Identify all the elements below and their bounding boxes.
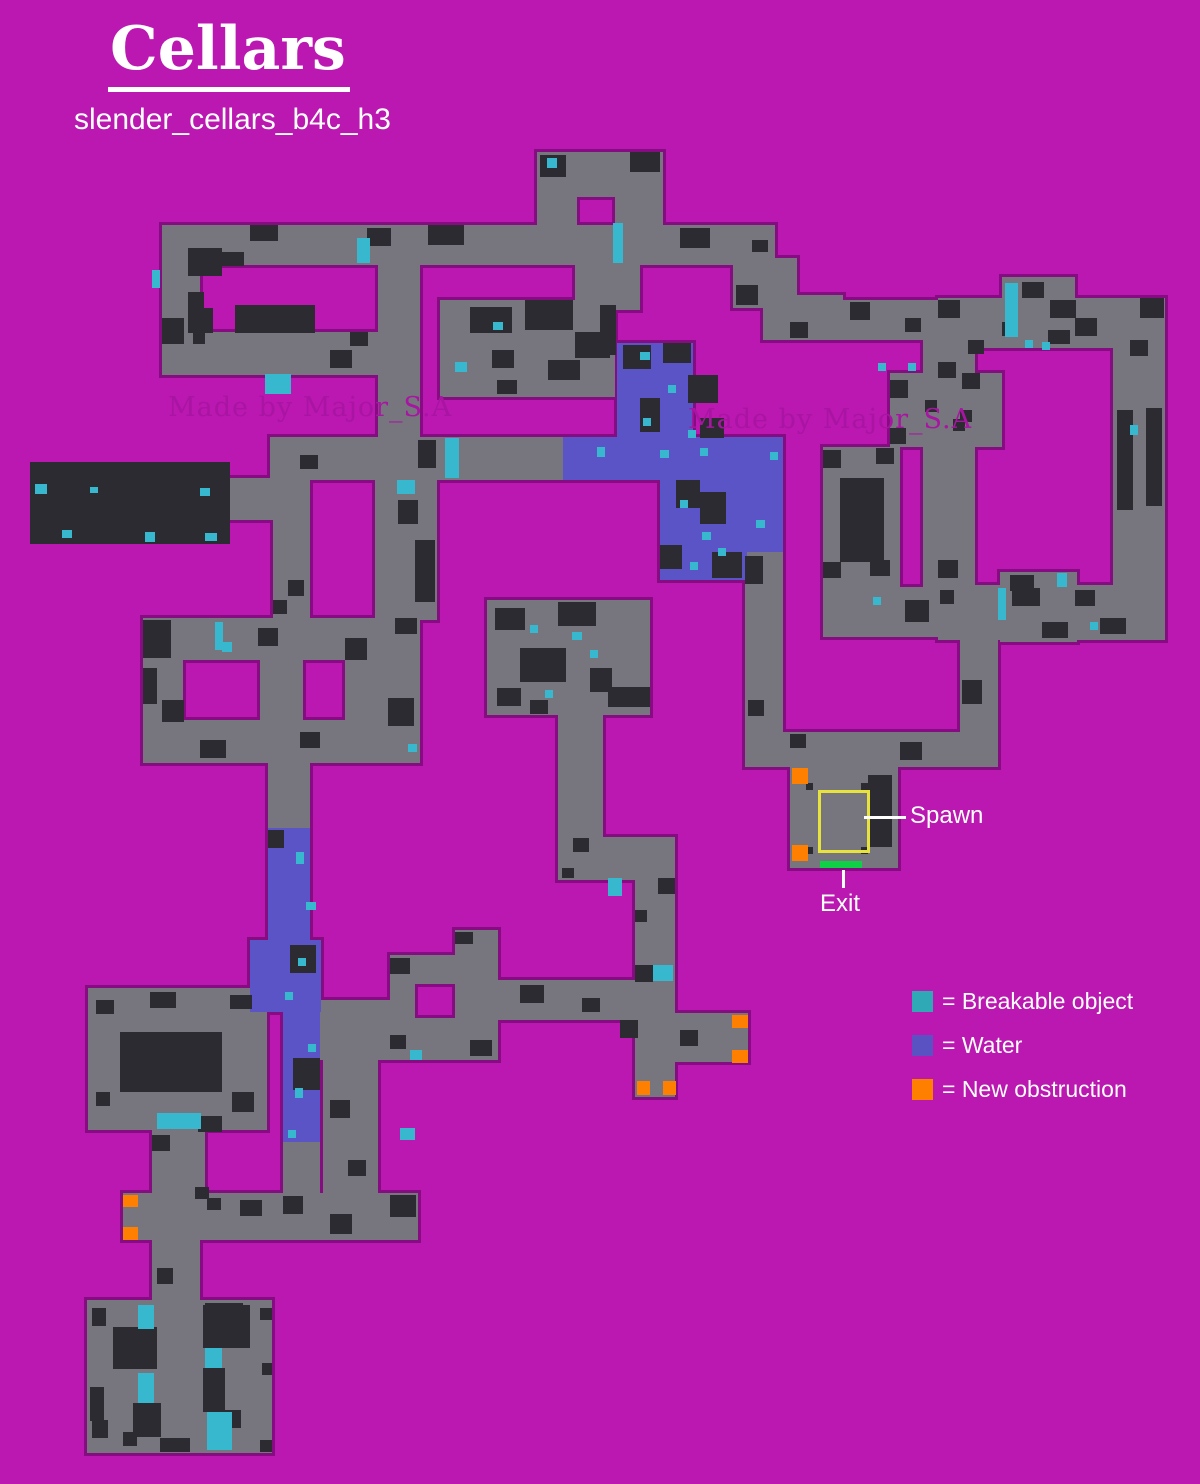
- shadow-patch: [823, 562, 841, 578]
- shadow-patch: [558, 602, 596, 626]
- shadow-patch: [660, 545, 682, 569]
- shadow-patch: [200, 740, 226, 758]
- shadow-patch: [157, 1268, 173, 1284]
- new-obstruction: [123, 1227, 138, 1240]
- spawn-label: Spawn: [910, 802, 983, 830]
- shadow-patch: [390, 1035, 406, 1049]
- map-hole: [415, 984, 455, 1018]
- shadow-patch: [395, 618, 417, 634]
- shadow-patch: [680, 1030, 698, 1046]
- shadow-patch: [630, 152, 660, 172]
- map-floor: [143, 720, 420, 763]
- shadow-patch: [790, 734, 806, 748]
- breakable-object: [1005, 283, 1018, 337]
- shadow-patch: [688, 375, 718, 403]
- shadow-patch: [1100, 618, 1126, 634]
- legend-row-breakable: = Breakable object: [912, 988, 1133, 1015]
- shadow-patch: [123, 1432, 137, 1446]
- breakable-object: [653, 965, 673, 981]
- watermark: Made by Major_S.A: [688, 404, 972, 435]
- shadow-patch: [113, 1327, 157, 1369]
- breakable-object: [90, 487, 98, 493]
- shadow-patch: [143, 620, 171, 658]
- shadow-patch: [330, 350, 352, 368]
- shadow-patch: [582, 998, 600, 1012]
- shadow-patch: [258, 628, 278, 646]
- shadow-patch: [198, 1116, 222, 1132]
- shadow-patch: [92, 1308, 106, 1326]
- breakable-object: [207, 1412, 232, 1450]
- shadow-patch: [1146, 408, 1162, 506]
- shadow-patch: [205, 1303, 243, 1320]
- shadow-patch: [262, 1363, 272, 1375]
- map-canvas: Made by Major_S.A Made by Major_S.A Spaw…: [0, 0, 1200, 1484]
- shadow-patch: [905, 318, 921, 332]
- new-obstruction: [732, 1015, 748, 1028]
- shadow-patch: [530, 700, 548, 714]
- shadow-patch: [218, 252, 244, 266]
- shadow-patch: [870, 560, 890, 576]
- shadow-patch: [680, 228, 710, 248]
- shadow-patch: [962, 373, 980, 389]
- new-obstruction: [663, 1081, 676, 1095]
- breakable-object: [35, 484, 47, 494]
- shadow-patch: [235, 305, 315, 333]
- breakable-object: [62, 530, 72, 538]
- breakable-object: [138, 1305, 154, 1329]
- shadow-patch: [962, 680, 982, 704]
- breakable-object: [998, 588, 1006, 620]
- shadow-patch: [230, 995, 252, 1009]
- breakable-object: [455, 362, 467, 372]
- exit-label: Exit: [820, 890, 860, 918]
- shadow-patch: [162, 318, 184, 344]
- breakable-object: [1057, 573, 1067, 587]
- map-floor: [575, 265, 640, 310]
- breakable-object: [410, 1050, 422, 1060]
- shadow-patch: [193, 332, 205, 344]
- breakable-object: [640, 352, 650, 360]
- shadow-patch: [428, 225, 464, 245]
- shadow-patch: [548, 360, 580, 380]
- shadow-patch: [525, 300, 573, 330]
- legend-row-water: = Water: [912, 1032, 1133, 1059]
- shadow-patch: [876, 448, 894, 464]
- breakable-object: [878, 363, 886, 371]
- breakable-object: [545, 690, 553, 698]
- breakable-object: [306, 902, 316, 910]
- map-floor: [320, 1000, 390, 1060]
- breakable-object: [493, 322, 503, 330]
- breakable-object: [597, 447, 605, 457]
- breakable-object: [285, 992, 293, 1000]
- shadow-patch: [1048, 330, 1070, 344]
- shadow-patch: [640, 398, 660, 432]
- breakable-object: [908, 363, 916, 371]
- breakable-object: [702, 532, 711, 540]
- shadow-patch: [635, 910, 647, 922]
- shadow-patch: [938, 362, 956, 378]
- shadow-patch: [1075, 318, 1097, 336]
- shadow-patch: [203, 1368, 225, 1412]
- breakable-object: [357, 238, 370, 263]
- shadow-patch: [283, 1196, 303, 1214]
- shadow-patch: [330, 1214, 352, 1234]
- map-floor: [273, 480, 310, 620]
- shadow-patch: [823, 450, 841, 468]
- shadow-patch: [455, 932, 473, 944]
- shadow-patch: [470, 1040, 492, 1056]
- shadow-patch: [207, 1198, 221, 1210]
- shadow-patch: [1140, 298, 1164, 318]
- breakable-object: [660, 450, 669, 458]
- shadow-patch: [1010, 575, 1034, 591]
- shadow-patch: [388, 698, 414, 726]
- breakable-object: [1042, 342, 1050, 350]
- watermark: Made by Major_S.A: [168, 392, 452, 423]
- shadow-patch: [348, 1160, 366, 1176]
- shadow-patch: [736, 285, 758, 305]
- map-floor: [745, 732, 998, 767]
- breakable-swatch-icon: [912, 991, 933, 1012]
- shadow-patch: [663, 343, 691, 363]
- shadow-patch: [150, 992, 176, 1008]
- breakable-object: [1025, 340, 1033, 348]
- breakable-object: [718, 548, 726, 556]
- breakable-object: [547, 158, 557, 168]
- shadow-patch: [250, 225, 278, 241]
- breakable-object: [296, 852, 304, 864]
- water-area: [563, 437, 783, 480]
- new-obstruction: [792, 845, 808, 861]
- shadow-patch: [806, 783, 813, 790]
- breakable-object: [530, 625, 538, 633]
- shadow-patch: [1050, 300, 1076, 318]
- shadow-patch: [790, 322, 808, 338]
- shadow-patch: [492, 350, 514, 368]
- shadow-patch: [940, 590, 954, 604]
- breakable-object: [445, 438, 459, 478]
- breakable-object: [157, 1113, 201, 1129]
- shadow-patch: [850, 302, 870, 320]
- shadow-patch: [890, 380, 908, 398]
- shadow-patch: [520, 648, 566, 682]
- shadow-patch: [495, 608, 525, 630]
- breakable-object: [288, 1130, 296, 1138]
- shadow-patch: [712, 552, 742, 578]
- shadow-patch: [968, 340, 984, 354]
- shadow-patch: [748, 700, 764, 716]
- shadow-patch: [330, 1100, 350, 1118]
- breakable-object: [572, 632, 582, 640]
- breakable-object: [222, 642, 232, 652]
- new-obstruction: [732, 1050, 748, 1063]
- shadow-patch: [520, 985, 544, 1003]
- legend-label-obstruction: = New obstruction: [942, 1076, 1127, 1103]
- shadow-patch: [367, 228, 391, 246]
- shadow-patch: [562, 868, 574, 878]
- shadow-patch: [95, 478, 115, 492]
- map-page: Cellars slender_cellars_b4c_h3 Made by M…: [0, 0, 1200, 1484]
- shadow-patch: [938, 300, 960, 318]
- breakable-object: [408, 744, 417, 752]
- obstruction-swatch-icon: [912, 1079, 933, 1100]
- map-floor: [558, 715, 603, 840]
- water-swatch-icon: [912, 1035, 933, 1056]
- new-obstruction: [123, 1195, 138, 1207]
- shadow-patch: [152, 1135, 170, 1151]
- breakable-object: [590, 650, 598, 658]
- breakable-object: [205, 533, 217, 541]
- breakable-object: [700, 448, 708, 456]
- map-floor: [123, 1193, 418, 1240]
- breakable-object: [680, 500, 688, 508]
- shadow-patch: [240, 1200, 262, 1216]
- shadow-patch: [350, 332, 368, 346]
- exit-pointer-line: [842, 870, 845, 888]
- shadow-patch: [90, 1387, 104, 1421]
- breakable-object: [400, 1128, 415, 1140]
- breakable-object: [152, 270, 160, 288]
- shadow-patch: [1130, 340, 1148, 356]
- shadow-patch: [700, 492, 726, 524]
- shadow-patch: [120, 1032, 222, 1092]
- shadow-patch: [497, 380, 517, 394]
- shadow-patch: [1022, 282, 1044, 298]
- new-obstruction: [637, 1081, 650, 1095]
- shadow-patch: [188, 308, 213, 333]
- map-floor: [268, 763, 310, 831]
- shadow-patch: [288, 580, 304, 596]
- shadow-patch: [390, 1195, 416, 1217]
- breakable-object: [1090, 622, 1098, 630]
- spawn-marker: [818, 790, 870, 853]
- shadow-patch: [390, 958, 410, 974]
- shadow-patch: [133, 1403, 161, 1437]
- breakable-object: [643, 418, 651, 426]
- shadow-patch: [745, 556, 763, 584]
- shadow-patch: [96, 1000, 114, 1014]
- breakable-object: [308, 1044, 316, 1052]
- breakable-object: [298, 958, 306, 966]
- shadow-patch: [300, 455, 318, 469]
- shadow-patch: [1075, 590, 1095, 606]
- shadow-patch: [188, 248, 222, 276]
- shadow-patch: [470, 307, 512, 333]
- shadow-patch: [143, 668, 157, 704]
- new-obstruction: [792, 768, 808, 784]
- shadow-patch: [608, 687, 650, 707]
- shadow-patch: [840, 478, 884, 562]
- legend: = Breakable object = Water = New obstruc…: [912, 988, 1133, 1120]
- shadow-patch: [573, 838, 589, 852]
- breakable-object: [613, 223, 623, 263]
- breakable-object: [205, 1348, 222, 1368]
- shadow-patch: [300, 732, 320, 748]
- shadow-patch: [293, 1058, 320, 1090]
- shadow-patch: [268, 830, 284, 848]
- shadow-patch: [96, 1092, 110, 1106]
- spawn-pointer-line: [864, 816, 906, 819]
- shadow-patch: [1042, 622, 1068, 638]
- shadow-patch: [162, 700, 184, 722]
- breakable-object: [295, 1088, 303, 1098]
- shadow-patch: [600, 305, 616, 355]
- shadow-patch: [232, 1092, 254, 1112]
- shadow-patch: [861, 783, 868, 790]
- shadow-patch: [415, 540, 435, 602]
- breakable-object: [873, 597, 881, 605]
- shadow-patch: [635, 965, 653, 982]
- breakable-object: [770, 452, 778, 460]
- shadow-patch: [160, 1438, 190, 1452]
- shadow-patch: [260, 1440, 272, 1452]
- shadow-patch: [905, 600, 929, 622]
- breakable-object: [1130, 425, 1138, 435]
- shadow-patch: [752, 240, 768, 252]
- breakable-object: [756, 520, 765, 528]
- shadow-patch: [658, 878, 675, 894]
- map-floor: [283, 1140, 320, 1195]
- breakable-object: [668, 385, 676, 393]
- shadow-patch: [938, 560, 958, 578]
- water-area: [745, 480, 783, 552]
- legend-label-water: = Water: [942, 1032, 1022, 1059]
- shadow-patch: [398, 500, 418, 524]
- shadow-patch: [418, 440, 436, 468]
- shadow-patch: [868, 775, 892, 847]
- shadow-patch: [497, 688, 521, 706]
- shadow-patch: [118, 505, 138, 533]
- breakable-object: [608, 878, 622, 896]
- shadow-patch: [900, 742, 922, 760]
- shadow-patch: [345, 638, 367, 660]
- breakable-object: [200, 488, 210, 496]
- breakable-object: [145, 532, 155, 542]
- shadow-patch: [260, 1308, 272, 1320]
- exit-marker: [820, 861, 862, 868]
- shadow-patch: [620, 1020, 638, 1038]
- breakable-object: [397, 480, 415, 494]
- breakable-object: [138, 1373, 154, 1403]
- legend-row-obstruction: = New obstruction: [912, 1076, 1133, 1103]
- breakable-object: [265, 374, 291, 394]
- breakable-object: [690, 562, 698, 570]
- legend-label-breakable: = Breakable object: [942, 988, 1133, 1015]
- shadow-patch: [273, 600, 287, 614]
- shadow-patch: [92, 1420, 108, 1438]
